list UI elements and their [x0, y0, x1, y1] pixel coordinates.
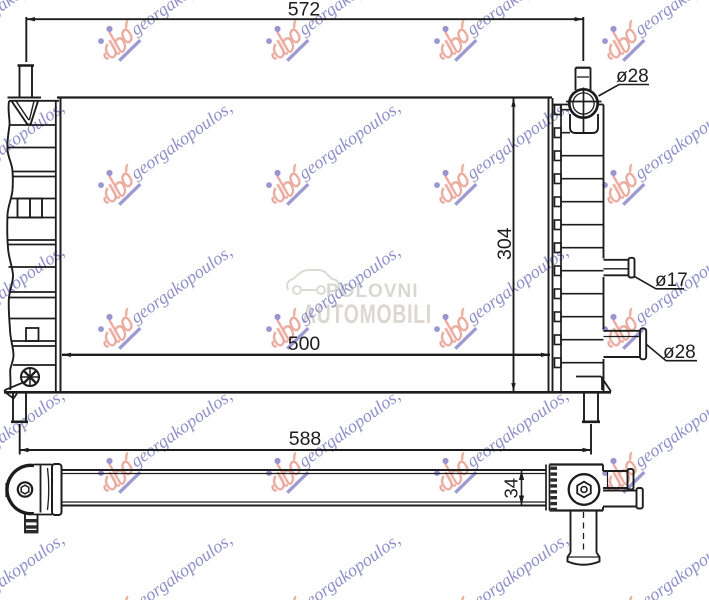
svg-text:ø17: ø17	[655, 270, 688, 291]
svg-text:34: 34	[501, 478, 522, 499]
svg-text:georgakopoulos,: georgakopoulos,	[0, 97, 68, 183]
svg-text:georgakopoulos,: georgakopoulos,	[631, 0, 709, 39]
svg-text:georgakopoulos,: georgakopoulos,	[463, 529, 572, 600]
svg-text:georgakopoulos,: georgakopoulos,	[0, 385, 68, 471]
svg-text:georgakopoulos,: georgakopoulos,	[631, 97, 709, 183]
svg-text:588: 588	[289, 428, 322, 450]
svg-text:ø28: ø28	[616, 66, 649, 87]
svg-text:georgakopoulos,: georgakopoulos,	[295, 97, 404, 183]
svg-text:georgakopoulos,: georgakopoulos,	[631, 385, 709, 471]
svg-text:georgakopoulos,: georgakopoulos,	[127, 385, 236, 471]
svg-text:ø28: ø28	[663, 342, 696, 363]
svg-text:georgakopoulos,: georgakopoulos,	[127, 97, 236, 183]
svg-text:572: 572	[288, 0, 321, 21]
svg-text:georgakopoulos,: georgakopoulos,	[463, 241, 572, 327]
svg-text:georgakopoulos,: georgakopoulos,	[295, 529, 404, 600]
svg-text:georgakopoulos,: georgakopoulos,	[631, 529, 709, 600]
svg-text:georgakopoulos,: georgakopoulos,	[0, 529, 68, 600]
svg-text:georgakopoulos,: georgakopoulos,	[463, 385, 572, 471]
svg-text:georgakopoulos,: georgakopoulos,	[127, 529, 236, 600]
svg-text:georgakopoulos,: georgakopoulos,	[0, 241, 68, 327]
svg-text:georgakopoulos,: georgakopoulos,	[127, 241, 236, 327]
svg-text:500: 500	[288, 333, 321, 355]
svg-text:georgakopoulos,: georgakopoulos,	[463, 97, 572, 183]
